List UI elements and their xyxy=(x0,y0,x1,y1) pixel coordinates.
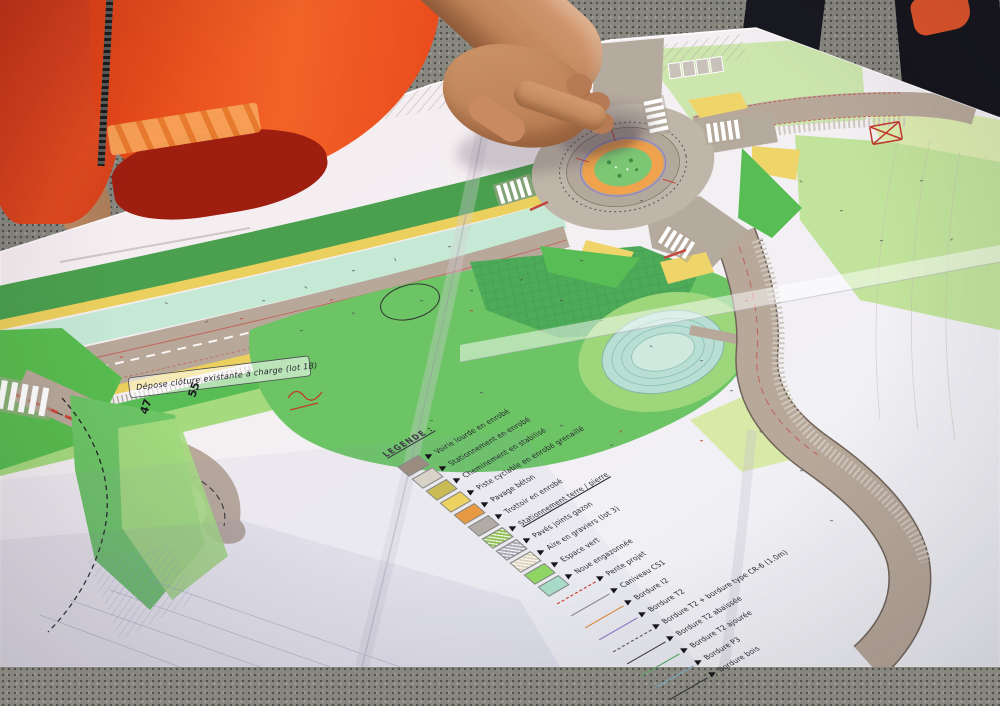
photo-of-site-plan: { "plan": { "handwritten_note": "Dépose … xyxy=(0,0,1000,667)
legend-arrow-icon xyxy=(481,501,491,508)
legend-arrow-icon xyxy=(439,465,449,472)
legend-arrow-icon xyxy=(652,623,662,630)
legend-arrow-icon xyxy=(666,635,676,642)
legend-arrow-icon xyxy=(610,587,620,594)
legend-arrow-icon xyxy=(624,599,634,606)
legend-arrow-icon xyxy=(537,549,547,556)
legend-arrow-icon xyxy=(565,573,575,580)
knuckle xyxy=(566,74,592,96)
legend-arrow-icon xyxy=(708,671,718,678)
legend-arrow-icon xyxy=(453,477,463,484)
legend-arrow-icon xyxy=(467,489,477,496)
legend-arrow-icon xyxy=(425,453,435,460)
legend-arrow-icon xyxy=(638,611,648,618)
legend-arrow-icon xyxy=(596,575,606,582)
legend-arrow-icon xyxy=(694,659,704,666)
legend-arrow-icon xyxy=(523,537,533,544)
legend-arrow-icon xyxy=(495,513,505,520)
legend-arrow-icon xyxy=(680,647,690,654)
legend-arrow-icon xyxy=(551,561,561,568)
legend-arrow-icon xyxy=(509,525,519,532)
